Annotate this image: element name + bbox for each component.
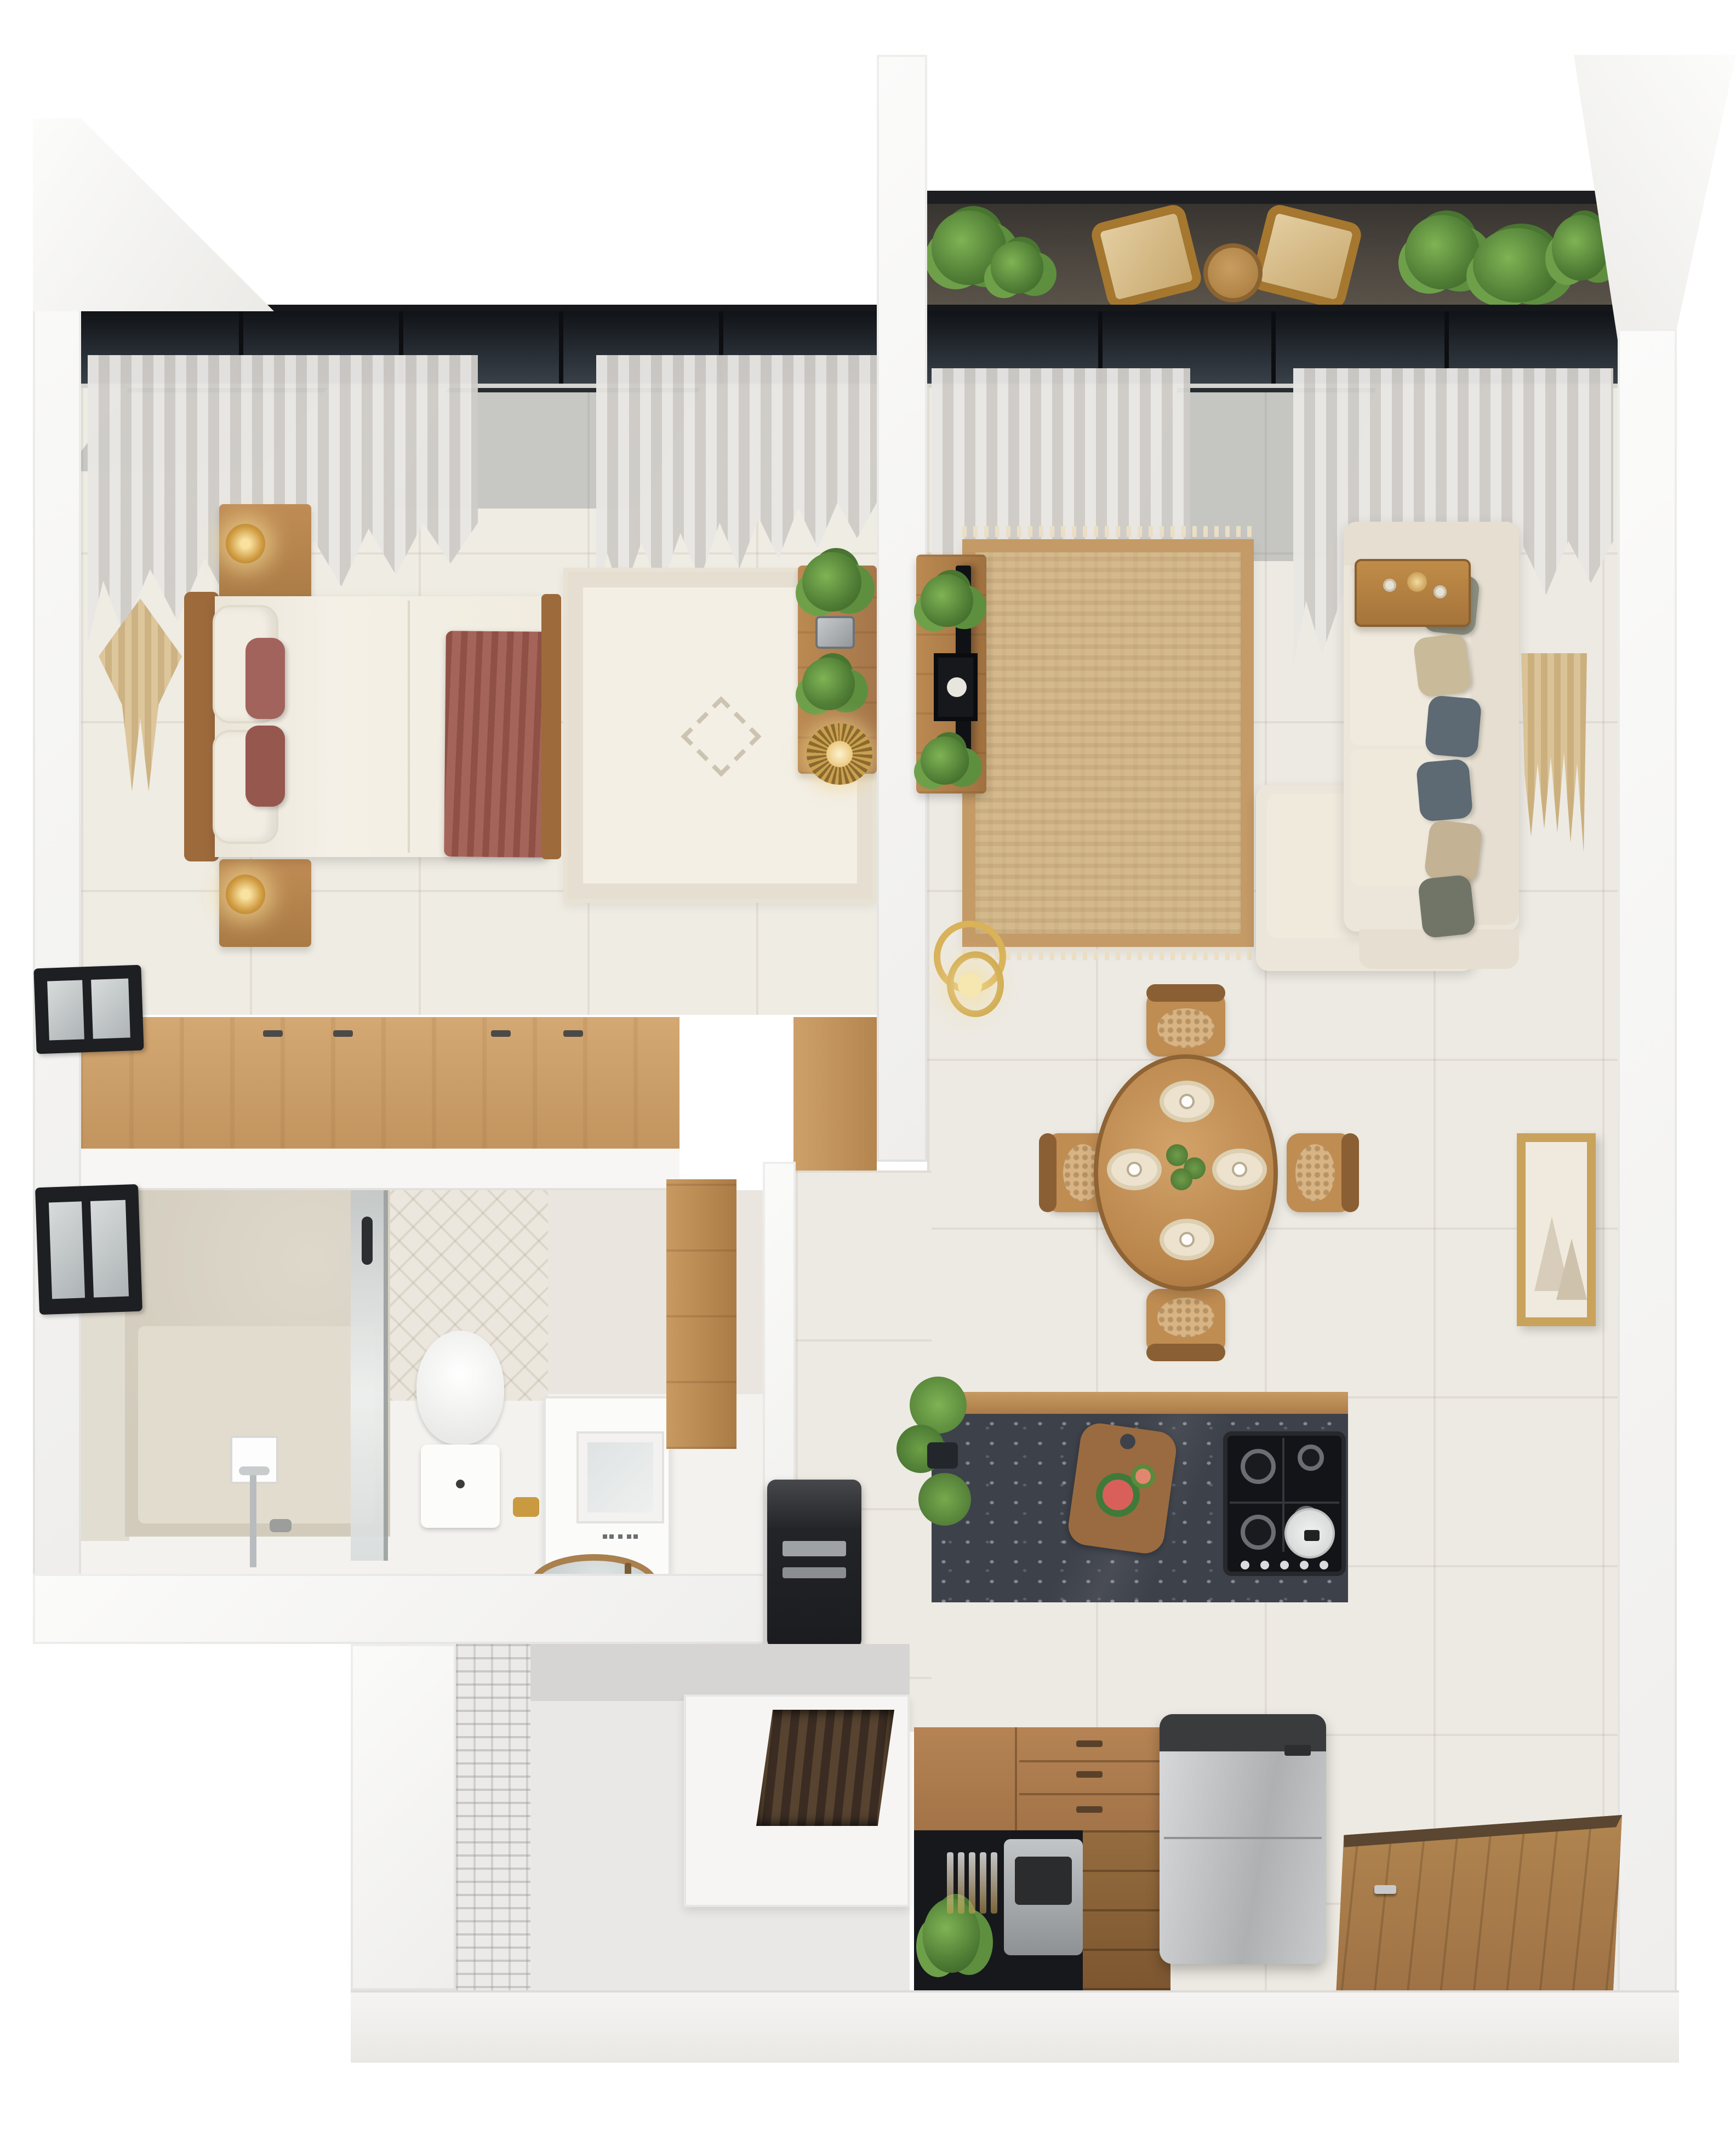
coffee-cup-icon: [1179, 1094, 1195, 1109]
apartment-scene: [0, 0, 1736, 2135]
window-glass: [90, 1200, 129, 1298]
dining-chair-east: [1287, 1133, 1352, 1212]
exterior-wall-left: [33, 118, 81, 1578]
machine-tray: [783, 1567, 846, 1578]
bottle-icon: [947, 1852, 953, 1914]
plant-icon: [802, 658, 855, 710]
rattan-seat: [1157, 1298, 1214, 1337]
gold-ring-lamp: [934, 921, 1008, 1021]
rug-diamond-motif: [679, 695, 760, 775]
refrigerator-handle: [1284, 1745, 1311, 1756]
wardrobe-handle: [563, 1030, 583, 1037]
scatter-pillow: [1415, 758, 1473, 822]
balcony-rail: [927, 191, 1618, 204]
potted-herb: [896, 1377, 993, 1548]
bottle-icon: [991, 1852, 997, 1914]
balcony-palm-icon: [1473, 228, 1561, 302]
drawer-cabinet: [914, 1727, 1166, 1830]
burner-icon: [1298, 1445, 1324, 1471]
toilet: [416, 1331, 504, 1445]
gold-paper-holder: [513, 1497, 539, 1517]
floorplan-render: [0, 0, 1736, 2135]
hob-knob-icon: [1300, 1561, 1309, 1569]
wardrobe-handle: [491, 1030, 511, 1037]
frying-pan: [1284, 1508, 1335, 1559]
drawer-handle: [1076, 1771, 1103, 1778]
table-lamp-icon: [226, 875, 265, 914]
exterior-wall-bottom: [351, 1990, 1679, 2063]
art-leaf-motif: [1556, 1238, 1587, 1300]
glass-icon: [1383, 579, 1396, 592]
centerpiece-plant: [1166, 1144, 1206, 1188]
fruit-icon: [1131, 1464, 1155, 1488]
chair-backrest: [1039, 1133, 1057, 1212]
glass-icon: [1434, 585, 1447, 598]
window-lower: [35, 1184, 142, 1315]
desk-mirror: [815, 616, 855, 649]
bathroom-south-wall: [33, 1574, 796, 1644]
cabinet-seam: [1015, 1727, 1017, 1830]
burner-icon: [1241, 1515, 1276, 1550]
machine-tray: [783, 1541, 846, 1556]
rattan-seat: [1295, 1144, 1335, 1201]
wardrobe-handle: [263, 1030, 283, 1037]
window-upper: [33, 965, 144, 1054]
plant-icon: [921, 574, 973, 627]
bathroom-tall-cabinet: [666, 1179, 736, 1449]
drawer-handle: [1076, 1740, 1103, 1747]
chair-backrest: [1146, 984, 1225, 1002]
coffee-machine: [767, 1480, 861, 1648]
terracotta-throw: [444, 631, 551, 858]
island-wood-base: [932, 1392, 1348, 1414]
shower-drain-icon: [270, 1519, 292, 1532]
refrigerator-door-seam: [1164, 1837, 1322, 1839]
bar-wood-shelving: [1083, 1830, 1170, 1990]
hob-knob-icon: [1260, 1561, 1269, 1569]
window-glass: [91, 978, 130, 1038]
bottle-icon: [969, 1852, 975, 1914]
cabinet-seam: [1019, 1760, 1164, 1762]
scatter-pillow: [1418, 874, 1476, 938]
built-in-appliance: [1004, 1839, 1083, 1955]
shower-head-icon: [239, 1466, 270, 1475]
chair-backrest: [1341, 1133, 1359, 1212]
door-handle: [1374, 1885, 1396, 1894]
leaf-icon: [918, 1473, 971, 1526]
plant-pot: [927, 1442, 958, 1469]
shower-riser: [250, 1475, 256, 1567]
duvet-seam: [408, 601, 410, 853]
bistro-table: [1203, 243, 1263, 302]
wardrobe-handle: [333, 1030, 353, 1037]
faucet-icon: [603, 1532, 638, 1539]
hob-knob-icon: [1241, 1561, 1249, 1569]
coffee-cup-icon: [1127, 1162, 1142, 1177]
decanter-icon: [1407, 572, 1427, 592]
mullion-icon: [559, 311, 563, 386]
window-glass: [47, 980, 84, 1040]
bottle-icon: [958, 1852, 964, 1914]
dining-chair-north: [1146, 991, 1225, 1057]
scatter-pillow: [1424, 695, 1482, 758]
coffee-cup-icon: [1232, 1162, 1247, 1177]
chair-backrest: [1146, 1344, 1225, 1361]
leaf-icon: [1170, 1168, 1192, 1190]
vanity-mirror: [579, 1434, 662, 1521]
exterior-wall-right: [1618, 329, 1677, 1999]
jute-rug: [962, 539, 1254, 947]
hob-knob-icon: [1320, 1561, 1328, 1569]
drawer-handle: [1076, 1806, 1103, 1813]
coffee-cup-icon: [1179, 1232, 1195, 1247]
wood-side-table: [1355, 559, 1471, 627]
stairwell-wall: [351, 1644, 456, 1990]
breeze-block-wall: [456, 1644, 530, 1990]
sunburst-lamp-icon: [807, 723, 872, 785]
scatter-pillow: [1413, 633, 1472, 698]
stair-flight: [756, 1710, 894, 1826]
flush-button-icon: [456, 1480, 465, 1488]
framed-botanical-art: [1517, 1133, 1596, 1326]
accent-pillow: [245, 638, 285, 719]
table-lamp-icon: [226, 524, 265, 563]
plant-icon: [921, 737, 969, 785]
rattan-seat: [1157, 1008, 1214, 1048]
mullion-icon: [1271, 311, 1276, 386]
burner-icon: [1241, 1449, 1276, 1484]
accent-pillow: [245, 726, 285, 807]
wardrobe-front: [79, 1149, 679, 1190]
scatter-pillow: [1424, 819, 1483, 884]
window-glass: [49, 1201, 85, 1299]
glass-door-handle: [362, 1217, 373, 1265]
wall-face-top-left: [33, 118, 274, 311]
hob-knob-icon: [1280, 1561, 1289, 1569]
bathroom: [81, 1190, 763, 1574]
tall-kitchen-unit: [793, 1017, 877, 1171]
plant-icon: [802, 552, 861, 612]
bottle-icon: [980, 1852, 986, 1914]
shower-tray: [138, 1326, 375, 1523]
hob-grate: [1230, 1502, 1339, 1504]
dining-chair-south: [1146, 1289, 1225, 1355]
balcony-palm-icon: [1405, 215, 1480, 289]
bed-foot-rail: [541, 594, 561, 859]
rug-fringe: [962, 526, 1254, 537]
cabinet-seam: [1019, 1793, 1164, 1795]
leaning-art-print: [934, 653, 978, 721]
built-in-wardrobe: [79, 1017, 679, 1149]
balcony-palm-icon: [991, 241, 1043, 294]
gas-hob: [1223, 1431, 1346, 1576]
lamp-glow: [958, 973, 982, 997]
